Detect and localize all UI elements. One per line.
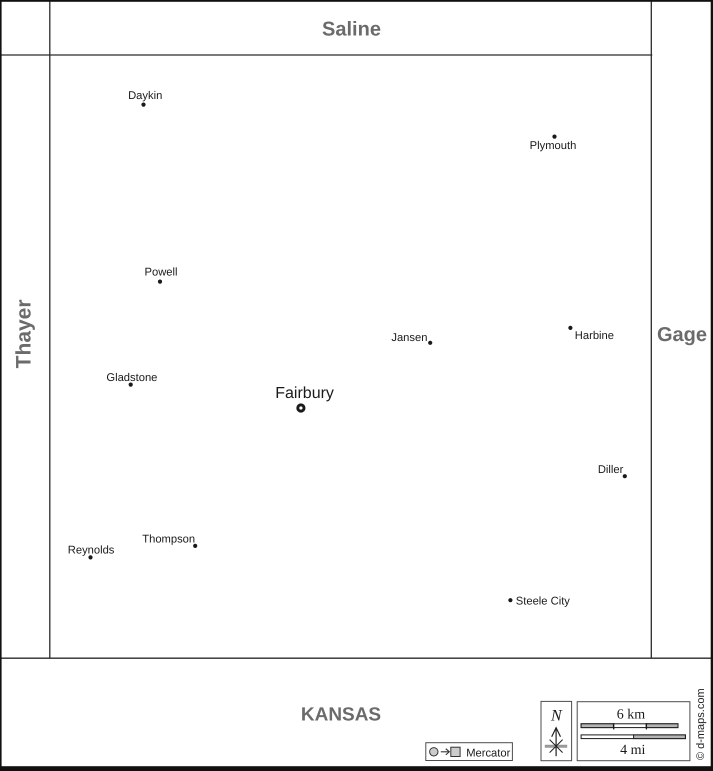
svg-text:Saline: Saline bbox=[322, 19, 381, 41]
svg-text:Jansen: Jansen bbox=[391, 332, 427, 344]
svg-text:Mercator: Mercator bbox=[466, 748, 510, 760]
svg-text:Thayer: Thayer bbox=[13, 299, 36, 368]
svg-text:Plymouth: Plymouth bbox=[530, 140, 577, 152]
svg-text:N: N bbox=[550, 708, 563, 725]
svg-text:Thompson: Thompson bbox=[142, 534, 195, 546]
svg-text:Powell: Powell bbox=[145, 267, 178, 279]
svg-text:© d-maps.com: © d-maps.com bbox=[695, 688, 707, 760]
svg-text:Diller: Diller bbox=[598, 464, 624, 476]
svg-text:Fairbury: Fairbury bbox=[275, 385, 334, 402]
svg-text:Reynolds: Reynolds bbox=[68, 544, 115, 556]
svg-text:Daykin: Daykin bbox=[128, 90, 162, 102]
svg-text:4 mi: 4 mi bbox=[620, 743, 645, 758]
svg-text:Harbine: Harbine bbox=[575, 330, 614, 342]
svg-text:Gage: Gage bbox=[657, 324, 707, 346]
svg-text:Gladstone: Gladstone bbox=[106, 372, 157, 384]
svg-text:Steele City: Steele City bbox=[516, 596, 571, 608]
svg-text:6 km: 6 km bbox=[617, 707, 646, 722]
svg-text:KANSAS: KANSAS bbox=[301, 704, 381, 725]
